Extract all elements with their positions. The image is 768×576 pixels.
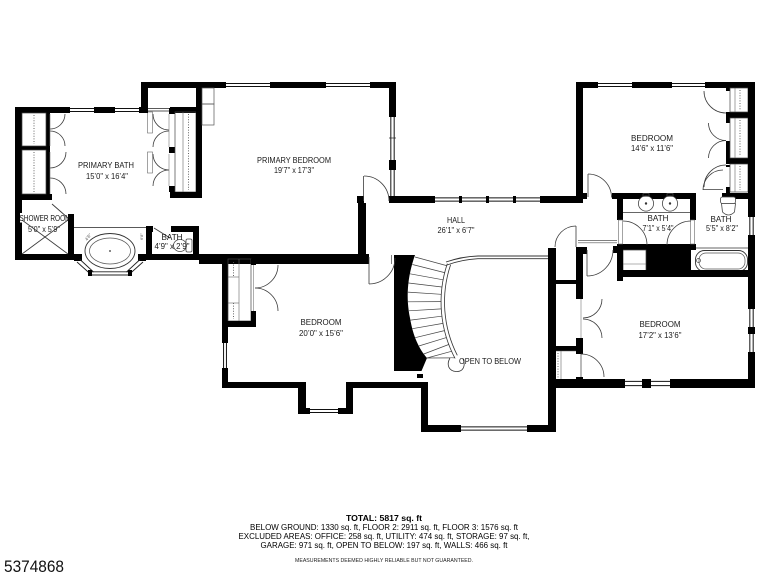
svg-text:17’2" x 13’6": 17’2" x 13’6" [639,331,682,340]
svg-text:BEDROOM: BEDROOM [301,318,342,327]
svg-text:PRIMARY BEDROOM: PRIMARY BEDROOM [257,156,331,165]
svg-text:14’6" x 11’6": 14’6" x 11’6" [631,144,673,153]
svg-text:BATH: BATH [648,214,669,223]
svg-text:HALL: HALL [447,216,465,225]
svg-text:20’0" x 15’6": 20’0" x 15’6" [299,329,343,338]
svg-text:15’0" x 16’4": 15’0" x 16’4" [86,172,128,181]
svg-text:6’8": 6’8" [139,233,144,240]
svg-text:BATH: BATH [711,215,732,224]
svg-text:BEDROOM: BEDROOM [631,134,673,143]
svg-text:PRIMARY BATH: PRIMARY BATH [78,161,134,170]
svg-text:OPEN TO BELOW: OPEN TO BELOW [459,357,521,366]
svg-text:SHOWER ROOM: SHOWER ROOM [20,214,71,223]
svg-text:MEASUREMENTS DEEMED HIGHLY REL: MEASUREMENTS DEEMED HIGHLY RELIABLE BUT … [295,558,473,564]
svg-text:5’5" x 8’2": 5’5" x 8’2" [706,224,738,233]
svg-text:26’1" x 6’7": 26’1" x 6’7" [438,226,475,235]
svg-text:GARAGE: 971 sq. ft, OPEN TO BE: GARAGE: 971 sq. ft, OPEN TO BELOW: 197 s… [261,541,509,550]
svg-text:BEDROOM: BEDROOM [640,320,681,329]
svg-text:19’7" x 17’3": 19’7" x 17’3" [274,166,314,175]
svg-text:BELOW GROUND: 1330 sq. ft, FLO: BELOW GROUND: 1330 sq. ft, FLOOR 2: 2911… [250,523,519,532]
svg-text:EXCLUDED AREAS: OFFICE: 258 sq: EXCLUDED AREAS: OFFICE: 258 sq. ft, UTIL… [239,532,530,541]
svg-text:TOTAL: 5817 sq. ft: TOTAL: 5817 sq. ft [346,514,422,523]
svg-text:5374868: 5374868 [4,558,64,576]
svg-text:7’1" x 5’4": 7’1" x 5’4" [643,224,674,233]
svg-text:4’9" x 2’9": 4’9" x 2’9" [155,242,190,251]
svg-text:BATH: BATH [162,233,183,242]
